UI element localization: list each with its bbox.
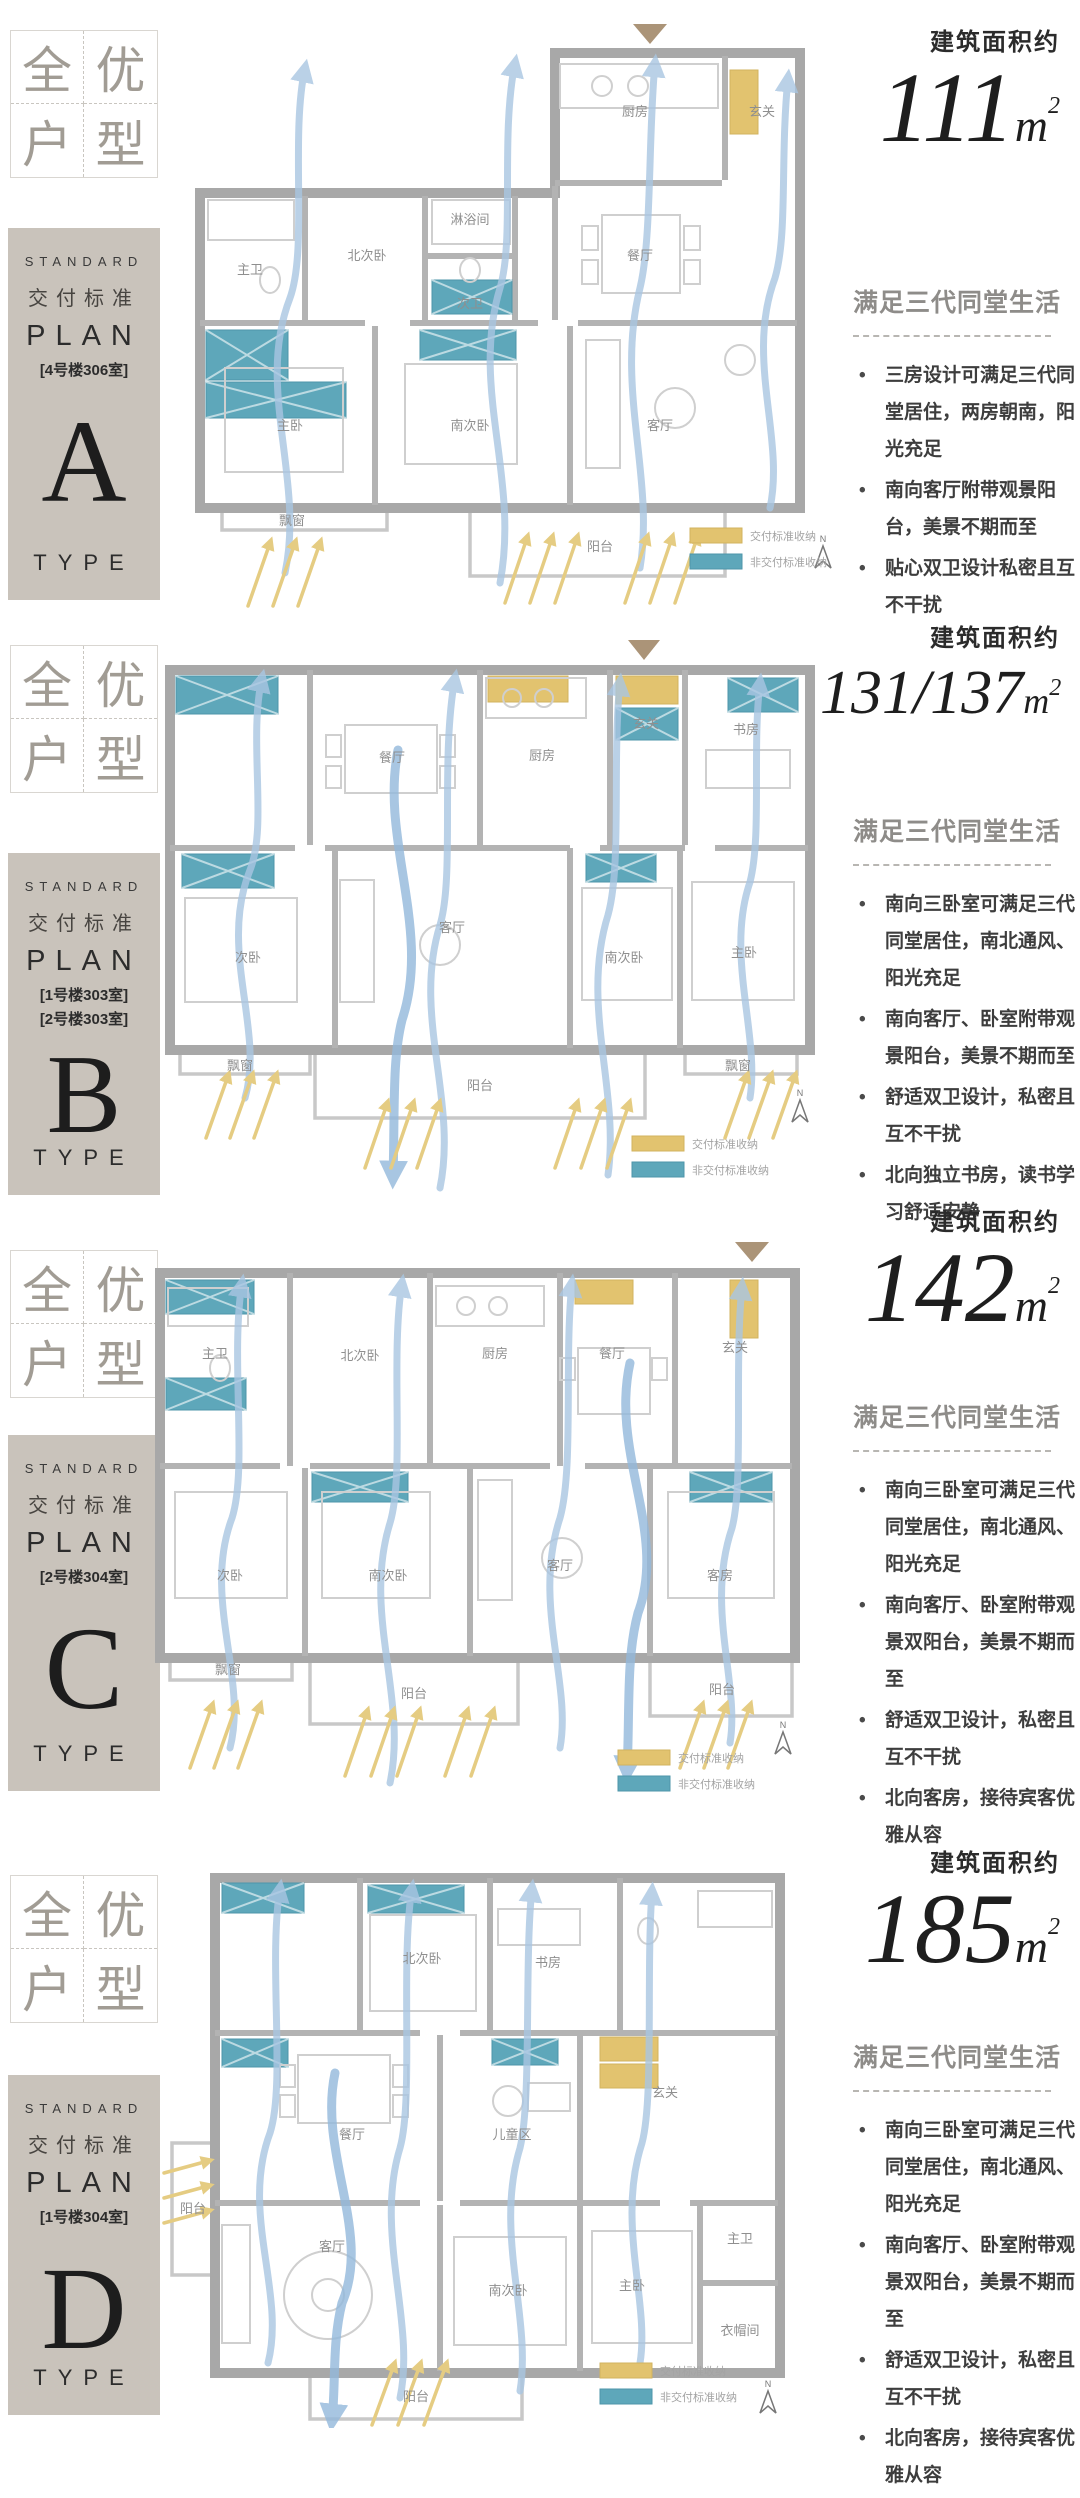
legend-nonstandard: 非交付标准收纳 [678,1777,755,1791]
badge-char: 全 [11,31,84,104]
plate-plan: PLAN [8,2167,160,2200]
area-block-d: 建筑面积约 185m2 [820,1843,1060,1980]
feature-item: 三房设计可满足三代同堂居住，两房朝南，阳光充足 [853,357,1075,468]
plate-letter: B [8,1039,160,1151]
legend-nonstandard: 非交付标准收纳 [692,1163,769,1177]
section-plan-a: 全 优 户 型 STANDARD 交付标准 PLAN [4号楼306室] A T… [0,0,1080,610]
entry-marker [628,640,660,660]
room-label: 玄关 [633,716,659,731]
feature-item: 南向三卧室可满足三代同堂居住，南北通风、阳光充足 [853,1472,1075,1583]
badge-char: 户 [11,719,84,792]
room-label: 玄关 [749,104,775,119]
north-indicator: N [792,1088,808,1122]
area-label: 建筑面积约 [820,618,1060,653]
quality-badge: 全 优 户 型 [10,1875,158,2023]
feature-item: 南向客厅、卧室附带观景双阳台，美景不期而至 [853,1587,1075,1698]
room-label: 厨房 [622,104,648,119]
badge-char: 优 [84,31,157,104]
feature-item: 南向三卧室可满足三代同堂居住，南北通风、阳光充足 [853,886,1075,997]
dashed-divider [853,335,1051,337]
legend-standard: 交付标准收纳 [660,2364,726,2378]
north-label: N [820,534,827,544]
description-block-b: 满足三代同堂生活 南向三卧室可满足三代同堂居住，南北通风、阳光充足 南向客厅、卧… [853,812,1075,1235]
room-label: 阳台 [709,1682,735,1697]
room-label: 阳台 [587,539,613,554]
room-label: 淋浴间 [450,212,489,227]
plate-type: TYPE [8,2365,160,2391]
room-label: 餐厅 [379,750,405,765]
area-value: 131/137m2 [820,653,1060,734]
north-label: N [765,2379,772,2389]
floor-plan-b: 餐厅 厨房 玄关 书房 次卧 客厅 南次卧 主卧 阳台 飘窗 飘窗 N 交付标准… [140,630,840,1215]
plate-plan: PLAN [8,945,160,978]
badge-char: 户 [11,1949,84,2022]
floor-plan-d: 北次卧 书房 餐厅 儿童区 玄关 客厅 南次卧 主卧 主卫 衣帽间 阳台 阳台 … [160,1843,820,2428]
plate-type: TYPE [8,1145,160,1171]
room-label: 书房 [733,722,759,737]
area-value: 142m2 [820,1237,1060,1339]
room-label: 阳台 [403,2389,429,2404]
room-label: 阳台 [401,1686,427,1701]
plate-letter: A [8,403,160,521]
description-block-a: 满足三代同堂生活 三房设计可满足三代同堂居住，两房朝南，阳光充足 南向客厅附带观… [853,283,1075,628]
room-label: 厨房 [529,748,555,763]
room-label: 北次卧 [402,1951,441,1966]
plate-unit: [2号楼303室] [8,1008,160,1029]
area-block-a: 建筑面积约 111m2 [820,22,1060,159]
north-label: N [780,1720,787,1730]
feature-list: 南向三卧室可满足三代同堂居住，南北通风、阳光充足 南向客厅、卧室附带观景阳台，美… [853,886,1075,1231]
description-block-c: 满足三代同堂生活 南向三卧室可满足三代同堂居住，南北通风、阳光充足 南向客厅、卧… [853,1398,1075,1858]
room-label: 客厅 [439,920,465,935]
legend-nonstandard: 非交付标准收纳 [750,555,827,569]
legend-nonstandard: 非交付标准收纳 [660,2390,737,2404]
plate-standard-cn: 交付标准 [8,907,160,936]
entry-marker [735,1242,769,1262]
feature-item: 南向客厅、卧室附带观景阳台，美景不期而至 [853,1001,1075,1075]
storage-legend: 交付标准收纳 非交付标准收纳 [618,1750,755,1791]
room-label: 餐厅 [627,248,653,263]
room-label: 飘窗 [227,1058,253,1073]
legend-standard: 交付标准收纳 [692,1137,758,1151]
plate-plan: PLAN [8,320,160,353]
walls [170,670,810,1118]
feature-item: 舒适双卫设计，私密且互不干扰 [853,1079,1075,1153]
feature-item: 舒适双卫设计，私密且互不干扰 [853,2342,1075,2416]
badge-char: 全 [11,1251,84,1324]
section-plan-d: 全 优 户 型 STANDARD 交付标准 PLAN [1号楼304室] D T… [0,1835,1080,2420]
storage-legend: 交付标准收纳 非交付标准收纳 [600,2363,737,2404]
room-label: 餐厅 [599,1346,625,1361]
desc-title: 满足三代同堂生活 [853,1398,1075,1434]
desc-title: 满足三代同堂生活 [853,283,1075,319]
quality-badge: 全 优 户 型 [10,30,158,178]
plan-plate-a: STANDARD 交付标准 PLAN [4号楼306室] A TYPE [8,228,160,600]
feature-item: 南向客厅、卧室附带观景双阳台，美景不期而至 [853,2227,1075,2338]
room-label: 主卧 [731,945,757,960]
section-plan-b: 全 优 户 型 STANDARD 交付标准 PLAN [1号楼303室] [2号… [0,610,1080,1200]
room-label: 客房 [707,1568,733,1583]
feature-list: 南向三卧室可满足三代同堂居住，南北通风、阳光充足 南向客厅、卧室附带观景双阳台，… [853,2112,1075,2494]
feature-item: 南向客厅附带观景阳台，美景不期而至 [853,472,1075,546]
north-indicator: N [775,1720,791,1754]
room-label: 衣帽间 [720,2323,759,2338]
room-label: 南次卧 [488,2283,527,2298]
storage-legend: 交付标准收纳 非交付标准收纳 [632,1136,769,1177]
room-label: 南次卧 [450,418,489,433]
room-label: 南次卧 [604,950,643,965]
area-block-b: 建筑面积约 131/137m2 [820,618,1060,734]
entry-marker [633,24,667,44]
plate-standard-en: STANDARD [8,254,160,269]
room-label: 客厅 [647,418,673,433]
plan-plate-d: STANDARD 交付标准 PLAN [1号楼304室] D TYPE [8,2075,160,2415]
plate-unit: [1号楼303室] [8,986,160,1006]
room-label: 玄关 [652,2085,678,2100]
badge-char: 型 [84,1949,157,2022]
room-label: 飘窗 [725,1058,751,1073]
room-label: 主卧 [277,418,303,433]
desc-title: 满足三代同堂生活 [853,2038,1075,2074]
badge-char: 优 [84,1876,157,1949]
room-label: 主卫 [237,262,263,277]
legend-standard: 交付标准收纳 [750,529,816,543]
room-label: 玄关 [722,1340,748,1355]
badge-char: 全 [11,1876,84,1949]
section-plan-c: 全 优 户 型 STANDARD 交付标准 PLAN [2号楼304室] C T… [0,1200,1080,1835]
feature-item: 北向客房，接待宾客优雅从容 [853,2420,1075,2494]
plate-standard-cn: 交付标准 [8,2129,160,2158]
feature-list: 三房设计可满足三代同堂居住，两房朝南，阳光充足 南向客厅附带观景阳台，美景不期而… [853,357,1075,624]
room-label: 主卫 [727,2231,753,2246]
room-label: 飘窗 [279,513,305,528]
quality-badge: 全 优 户 型 [10,645,158,793]
room-label: 阳台 [180,2201,206,2216]
room-label: 次卫 [457,296,483,311]
floor-plan-c: 北次卧 厨房 餐厅 玄关 次卧 南次卧 客厅 客房 阳台 阳台 飘窗 主卫 N … [130,1228,830,1828]
feature-list: 南向三卧室可满足三代同堂居住，南北通风、阳光充足 南向客厅、卧室附带观景双阳台，… [853,1472,1075,1854]
room-label: 阳台 [467,1078,493,1093]
badge-char: 户 [11,104,84,177]
area-block-c: 建筑面积约 142m2 [820,1202,1060,1339]
north-indicator: N [760,2379,776,2413]
badge-char: 户 [11,1324,84,1397]
area-value: 185m2 [820,1878,1060,1980]
feature-item: 舒适双卫设计，私密且互不干扰 [853,1702,1075,1776]
room-label: 飘窗 [215,1662,241,1677]
dashed-divider [853,1450,1051,1452]
badge-char: 型 [84,104,157,177]
plate-unit: [1号楼304室] [8,2208,160,2228]
badge-char: 全 [11,646,84,719]
room-label: 主卧 [619,2278,645,2293]
plate-standard-en: STANDARD [8,879,160,894]
floor-plan-a: 主卫 北次卧 淋浴间 次卫 厨房 玄关 餐厅 主卧 南次卧 客厅 阳台 飘窗 N… [170,8,860,608]
legend-standard: 交付标准收纳 [678,1751,744,1765]
plate-letter: D [8,2250,160,2368]
plan-plate-b: STANDARD 交付标准 PLAN [1号楼303室] [2号楼303室] B… [8,853,160,1195]
dashed-divider [853,2090,1051,2092]
description-block-d: 满足三代同堂生活 南向三卧室可满足三代同堂居住，南北通风、阳光充足 南向客厅、卧… [853,2038,1075,2498]
room-label: 儿童区 [492,2127,531,2142]
plate-standard-en: STANDARD [8,2101,160,2116]
room-label: 书房 [535,1955,561,1970]
feature-item: 南向三卧室可满足三代同堂居住，南北通风、阳光充足 [853,2112,1075,2223]
room-label: 主卫 [202,1346,228,1361]
room-label: 北次卧 [347,248,386,263]
room-label: 次卧 [235,950,261,965]
room-label: 客厅 [547,1558,573,1573]
north-label: N [797,1088,804,1098]
room-label: 客厅 [319,2239,345,2254]
room-label: 北次卧 [340,1348,379,1363]
desc-title: 满足三代同堂生活 [853,812,1075,848]
room-label: 餐厅 [339,2127,365,2142]
room-label: 次卧 [217,1568,243,1583]
plate-unit: [4号楼306室] [8,361,160,381]
room-label: 南次卧 [368,1568,407,1583]
plate-type: TYPE [8,550,160,576]
area-value: 111m2 [820,57,1060,159]
room-label: 厨房 [482,1346,508,1361]
dashed-divider [853,864,1051,866]
plate-standard-cn: 交付标准 [8,282,160,311]
